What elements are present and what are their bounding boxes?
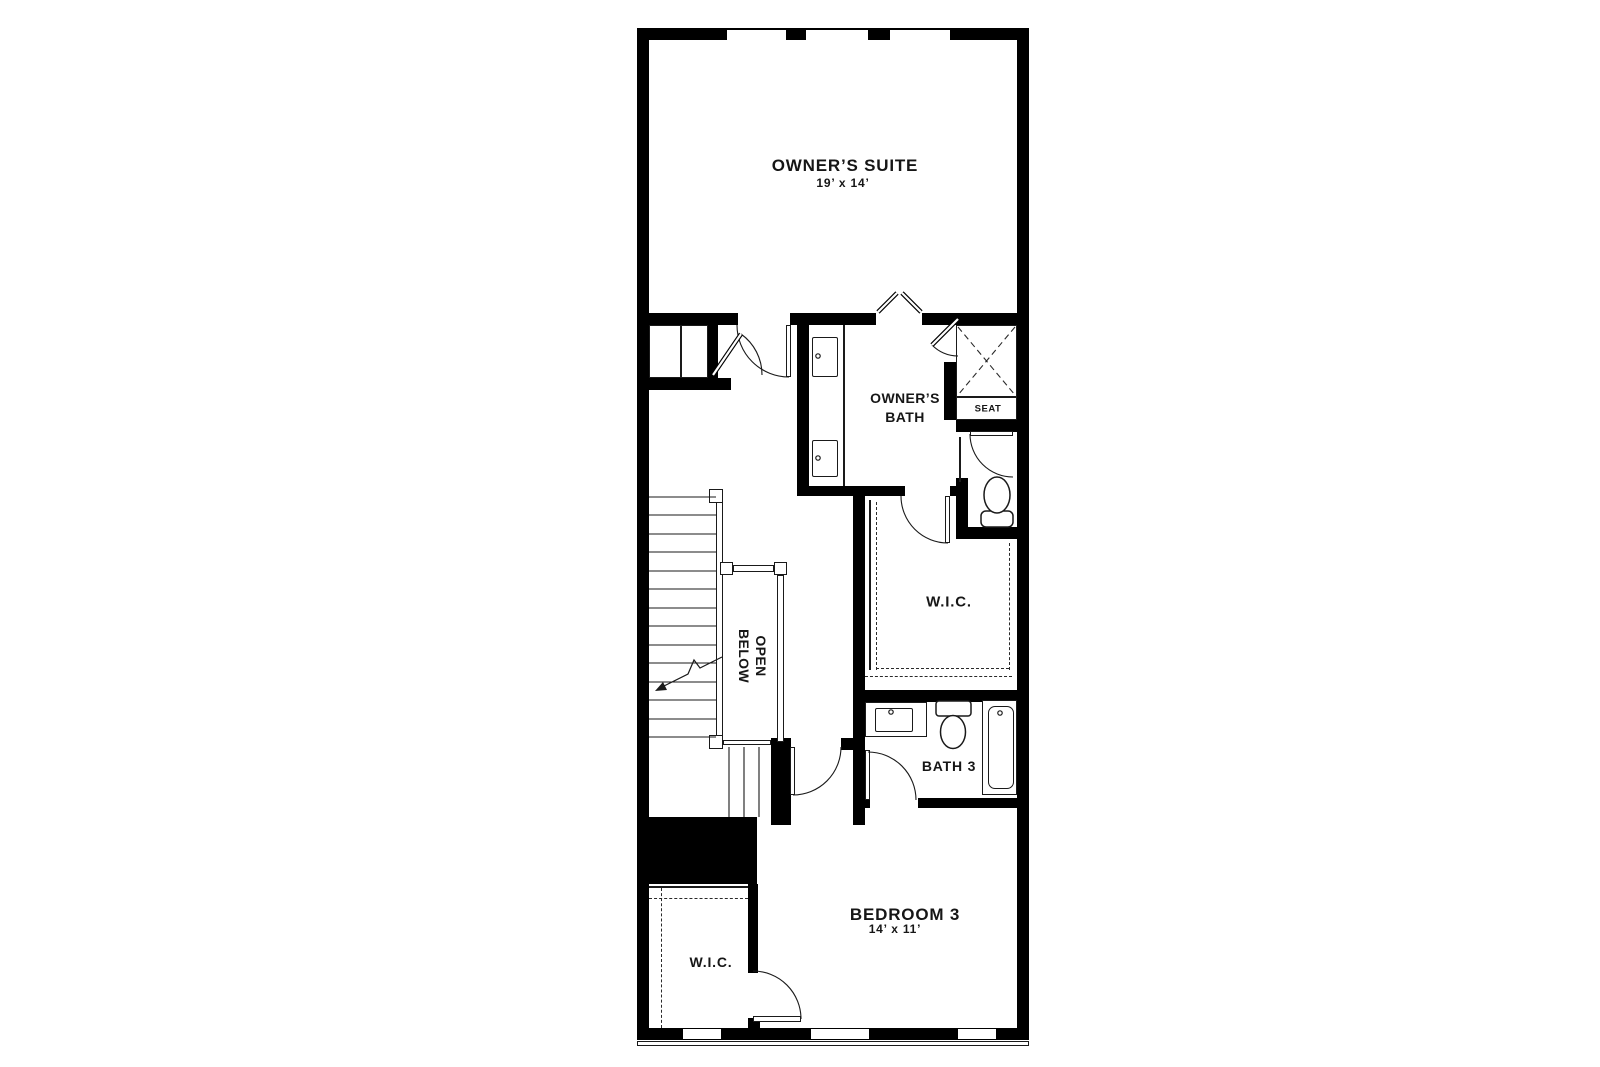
owners-suite-label: OWNER’S SUITE xyxy=(772,156,918,176)
shower-door-leaf xyxy=(932,319,958,345)
owners-bath-label: OWNER’S BATH xyxy=(870,389,940,427)
tub-faucet-dot xyxy=(998,711,1002,715)
bath-double-door-left-leaf xyxy=(878,293,897,312)
stair-arrow-head xyxy=(655,682,667,691)
bedroom3-dims: 14’ x 11’ xyxy=(869,922,922,936)
bath-double-door-right-leaf xyxy=(902,293,921,312)
sink1-faucet-dot xyxy=(816,354,820,358)
open-below-line2: BELOW xyxy=(735,629,752,683)
bwic-door-arc xyxy=(753,971,801,1019)
bath3-label: BATH 3 xyxy=(922,758,976,774)
bath3-door-arc xyxy=(868,752,916,800)
owners-bath-label-line1: OWNER’S xyxy=(870,389,940,408)
owners-toilet-icon xyxy=(981,477,1013,527)
owners-bath-label-line2: BATH xyxy=(870,408,940,427)
shower-seat-label: SEAT xyxy=(975,404,1002,415)
bath3-sink-faucet-dot xyxy=(889,710,893,714)
stair-treads-upper xyxy=(649,497,716,737)
floor-plan-canvas: OWNER’S SUITE 19’ x 14’ OWNER’S BATH SEA… xyxy=(0,0,1600,1067)
hall-door-arc xyxy=(793,747,841,795)
shower-door-arc xyxy=(932,345,958,356)
toilet-room-door-arc xyxy=(970,434,1013,477)
bath3-toilet-icon xyxy=(936,701,971,749)
closet-door-leaf xyxy=(713,334,741,375)
shower-x-pattern xyxy=(958,327,1015,395)
open-below-line1: OPEN xyxy=(752,629,769,683)
wic-door-arc xyxy=(901,496,948,543)
bedroom-wic-label: W.I.C. xyxy=(690,954,733,970)
open-below-label: OPEN BELOW xyxy=(735,629,769,683)
stair-treads-lower xyxy=(729,747,759,817)
suite-door-arc xyxy=(737,325,789,377)
owners-wic-label: W.I.C. xyxy=(926,594,972,611)
stair-arrow xyxy=(658,657,722,689)
sink2-faucet-dot xyxy=(816,456,820,460)
closet-door-arc xyxy=(741,334,762,375)
owners-suite-dims: 19’ x 14’ xyxy=(816,176,869,190)
